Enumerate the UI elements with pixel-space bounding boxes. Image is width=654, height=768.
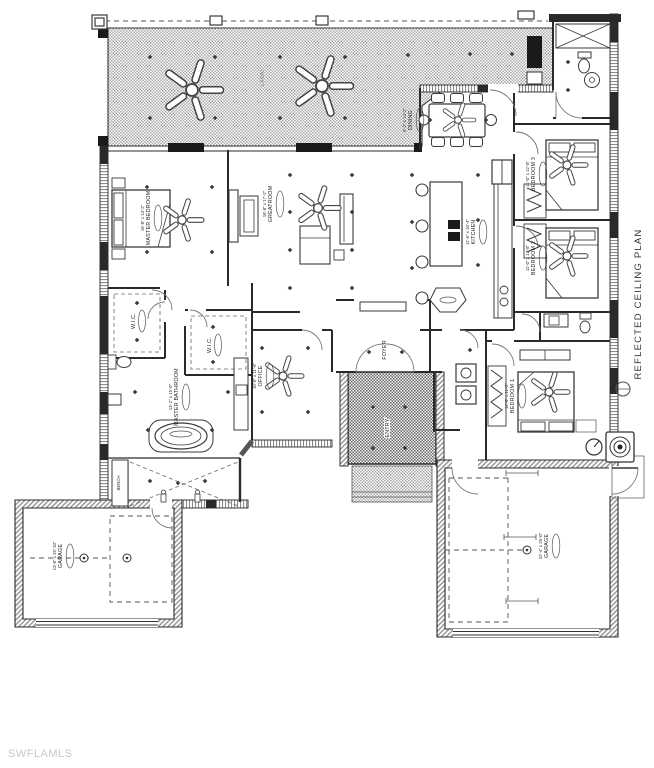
label-wic2: W.I.C. [207, 334, 222, 356]
side-table [334, 250, 344, 260]
chair-icon [432, 94, 445, 103]
ceiling-tag [139, 310, 146, 332]
label-greatroom: 18'-8" x 17'-2" GREATROOM [262, 185, 284, 222]
door-arc [452, 468, 478, 494]
chair-icon [470, 138, 483, 147]
sofa [340, 194, 353, 244]
cooktop [448, 232, 460, 241]
room-dims: 9'-2" x 14'-2" [402, 108, 407, 133]
room-dims: 13'-8" x 25'-10" [52, 541, 57, 570]
nightstand [112, 249, 125, 259]
label-bedroom3: 11'-0" x 12'-8" BEDROOM 3 [525, 157, 547, 191]
label-foyer: FOYER [382, 340, 388, 360]
sliding-door-column [168, 143, 204, 152]
garage-fixture-icon [80, 554, 88, 562]
sliding-door-column [296, 143, 332, 152]
cooktop [448, 220, 460, 229]
plan-title: REFLECTED CEILING PLAN [633, 229, 644, 380]
ceiling-fan-icon [265, 355, 304, 396]
room-name: DINING [408, 110, 414, 130]
ceiling-tag [215, 334, 222, 356]
laundry-appliances [456, 364, 476, 404]
sink-icon [549, 316, 559, 325]
nightstand [112, 178, 125, 188]
room-dims: 12'-8" x 11'-2" [504, 382, 509, 409]
stool-icon [416, 256, 428, 268]
outdoor-cabinet [527, 72, 542, 84]
label-wic1: W.I.C. [131, 310, 146, 332]
chair-icon [451, 94, 464, 103]
entry-porch-region [340, 372, 444, 502]
garage-fixture-icon [123, 554, 131, 562]
watermark: SWFLAMLS [8, 748, 73, 760]
pool-bath-fixtures [556, 24, 610, 88]
room-name: MASTER BEDROOM [146, 190, 152, 245]
room-dims: 11'-0" x 12'-8" [525, 244, 530, 271]
label-entry: ENTRY [385, 418, 391, 437]
bay-corner [241, 441, 252, 455]
ceiling-tag [66, 544, 74, 568]
room-name: BEDROOM 1 [510, 379, 516, 413]
room-name: ENTRY [385, 418, 391, 437]
kitchen-fixtures [416, 160, 512, 318]
room-name: OFFICE [258, 365, 264, 386]
room-name: BEDROOM 2 [531, 241, 537, 275]
room-dims: 11'-6" x 10'-4" [465, 218, 470, 245]
toilet-icon [578, 52, 591, 73]
sink-icon [108, 394, 121, 405]
office-bay-window-wall [252, 440, 332, 447]
media-console [229, 190, 238, 242]
toilet-icon [117, 357, 131, 368]
room-dims: 13'-2" x 15'-0" [168, 383, 173, 410]
label-kitchen: 11'-6" x 10'-4" KITCHEN [465, 218, 487, 245]
garage-fixture-icon [523, 546, 531, 554]
stool-icon [416, 220, 428, 232]
dimension-ticks [504, 470, 538, 604]
room-dims: 11'-0" x 12'-8" [525, 160, 530, 187]
room-name: LANAI [260, 70, 266, 87]
sink-icon [585, 73, 600, 88]
sectional [300, 226, 330, 264]
toilet-icon [580, 321, 590, 333]
bath2-fixtures [544, 313, 591, 333]
label-bench: BENCH [116, 475, 121, 490]
chair-icon [470, 94, 483, 103]
label-master-bathroom: 13'-2" x 15'-0" MASTER BATHROOM [168, 368, 190, 426]
room-name: GARAGE [544, 534, 550, 558]
ceiling-tag [552, 534, 560, 558]
room-name: BEDROOM 3 [531, 157, 537, 191]
room-name: GARAGE [58, 544, 64, 568]
outdoor-grill [527, 36, 542, 68]
dinette-table [430, 288, 466, 312]
porch-wall [436, 372, 444, 466]
room-name: GREATROOM [268, 185, 274, 222]
stool-icon [416, 292, 428, 304]
ceiling-tag [182, 384, 190, 410]
ceiling-tag [276, 191, 284, 217]
column-posts [92, 11, 534, 29]
foyer-console [360, 302, 406, 311]
plan-title-block: REFLECTED CEILING PLAN [616, 229, 644, 397]
sink-icon [500, 298, 508, 306]
sink-icon [500, 286, 508, 294]
pool-bath-north-wall [549, 14, 621, 22]
room-name: FOYER [382, 340, 388, 360]
floor-plan-canvas: LANAI 9'-2" x 14'-2" DINING 16'-8" x 13'… [0, 0, 654, 768]
room-name: KITCHEN [471, 219, 477, 244]
floor-register [576, 420, 596, 432]
room-name: MASTER BATHROOM [174, 368, 180, 426]
porch-wall [340, 372, 348, 466]
chair-icon [432, 138, 445, 147]
ceiling-tag [479, 220, 487, 244]
garage-left-structure [15, 499, 182, 627]
label-garage-left: 13'-8" x 25'-10" GARAGE [52, 541, 74, 570]
room-name: W.I.C. [131, 313, 137, 329]
utility-equipment [576, 420, 634, 462]
stool-icon [416, 184, 428, 196]
room-dims: 16'-8" x 13'-2" [140, 204, 145, 231]
chair-icon [451, 138, 464, 147]
lanai-column [98, 136, 108, 146]
ceiling-fan-icon [298, 185, 341, 230]
label-lanai: LANAI [260, 70, 266, 87]
door-arc [152, 508, 172, 528]
label-garage-right: 22'-4" x 25'-0" GARAGE [538, 532, 560, 559]
sink-icon [236, 385, 247, 395]
room-dims: 10'-0" x 11'-6" [252, 362, 257, 389]
room-dims: 22'-4" x 25'-0" [538, 532, 543, 559]
room-name: BENCH [116, 475, 121, 490]
room-dims: 18'-8" x 17'-2" [262, 190, 267, 217]
room-name: W.I.C. [207, 337, 213, 353]
